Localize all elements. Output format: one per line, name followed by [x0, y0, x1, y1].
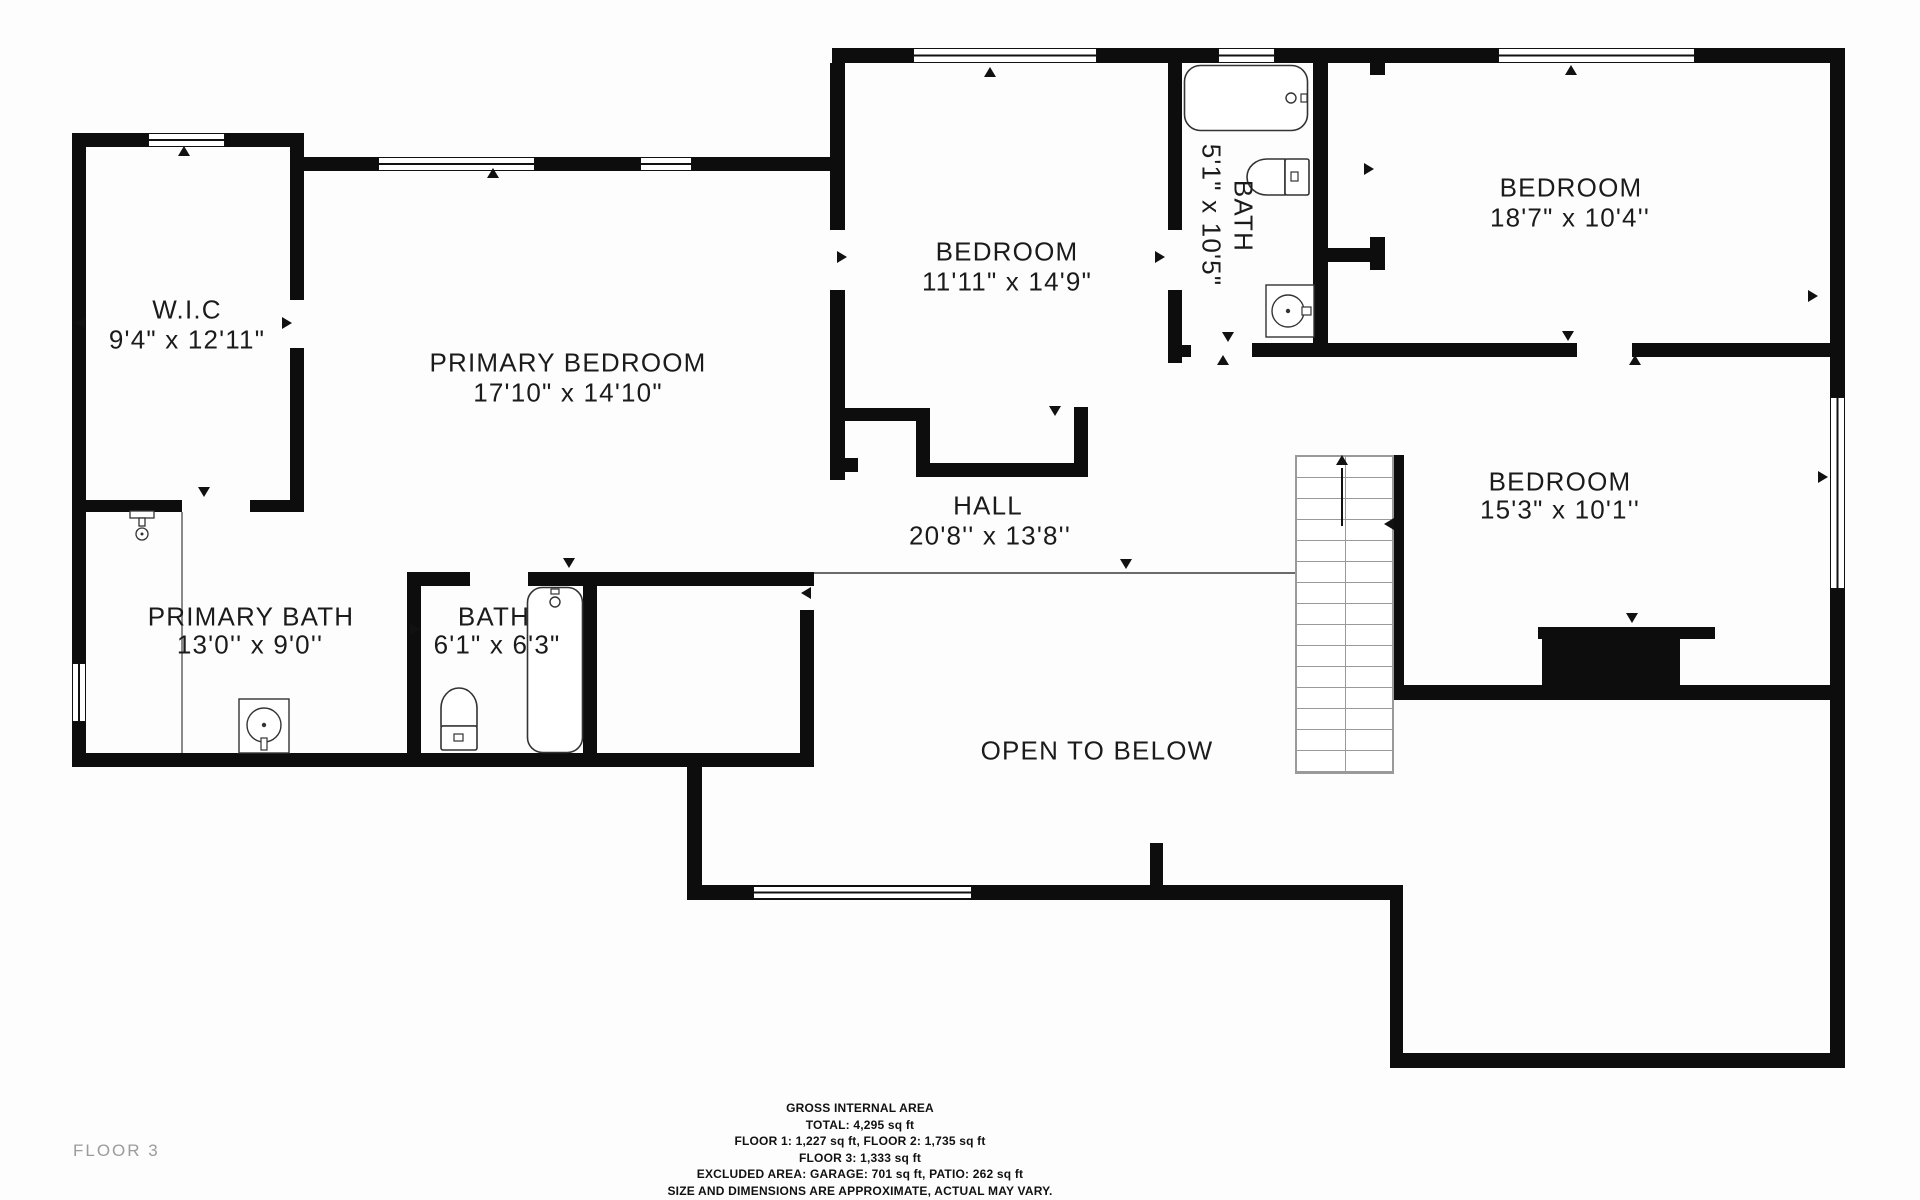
door-marker-icon [1217, 355, 1229, 365]
wall [290, 348, 304, 512]
room-label: PRIMARY BEDROOM [429, 348, 706, 379]
window-icon [72, 663, 86, 722]
door-marker-icon [1626, 613, 1638, 623]
wall [1252, 343, 1577, 357]
wall [1370, 63, 1385, 75]
wall [1632, 343, 1843, 357]
open-to-below-label: OPEN TO BELOW [981, 736, 1214, 767]
room-label: BATH [1228, 180, 1259, 252]
wall [1328, 248, 1385, 262]
room-label: BEDROOM [1489, 467, 1632, 498]
bathtub-icon [526, 586, 584, 754]
wall [830, 63, 845, 230]
window-icon [753, 886, 972, 899]
room-dims: 11'11" x 14'9" [922, 267, 1092, 298]
wall [290, 147, 304, 300]
footer-area-summary: GROSS INTERNAL AREA TOTAL: 4,295 sq ft F… [560, 1100, 1160, 1199]
room-dims: 18'7" x 10'4'' [1490, 203, 1650, 234]
door-marker-icon [984, 67, 996, 77]
footer-line: EXCLUDED AREA: GARAGE: 701 sq ft, PATIO:… [560, 1166, 1160, 1183]
sink-icon [238, 698, 290, 754]
wall [1074, 407, 1088, 477]
door-marker-icon [1808, 290, 1818, 302]
footer-line: SIZE AND DIMENSIONS ARE APPROXIMATE, ACT… [560, 1183, 1160, 1200]
door-marker-icon [1155, 251, 1165, 263]
footer-line: TOTAL: 4,295 sq ft [560, 1117, 1160, 1134]
wall [1168, 63, 1182, 230]
door-marker-icon [1629, 355, 1641, 365]
door-marker-icon [1384, 518, 1394, 530]
wall [72, 753, 814, 767]
door-marker-icon [487, 168, 499, 178]
door-marker-icon [75, 317, 85, 329]
chimney [1542, 639, 1680, 692]
door-marker-icon [1222, 332, 1234, 342]
wall [1390, 1053, 1843, 1068]
wall [830, 290, 845, 480]
door-marker-icon [282, 317, 292, 329]
room-dims: 17'10" x 14'10" [473, 378, 663, 409]
wall [687, 760, 702, 895]
window-icon [1218, 48, 1275, 63]
floor-plan: W.I.C 9'4" x 12'11" PRIMARY BEDROOM 17'1… [0, 0, 1920, 1200]
wall [583, 586, 597, 753]
wall [1390, 885, 1403, 1068]
door-marker-icon [1364, 163, 1374, 175]
room-label: HALL [953, 491, 1023, 522]
wall [290, 157, 845, 171]
stairs [1295, 455, 1394, 774]
wall [407, 572, 421, 767]
sink-icon [1265, 284, 1315, 338]
wall [845, 408, 930, 421]
stairs-up-arrow-icon [1341, 468, 1343, 526]
door-marker-icon [563, 558, 575, 568]
room-dims: 6'1" x 6'3" [434, 630, 561, 661]
door-marker-icon [801, 587, 811, 599]
wall [1150, 843, 1163, 891]
room-label: BEDROOM [1500, 173, 1643, 204]
window-icon [148, 133, 225, 147]
door-marker-icon [178, 146, 190, 156]
door-marker-icon [1120, 559, 1132, 569]
open-edge-line [814, 572, 1295, 574]
door-marker-icon [198, 487, 210, 497]
wall [1182, 345, 1191, 357]
door-marker-icon [837, 251, 847, 263]
room-dims: 13'0'' x 9'0'' [177, 630, 323, 661]
window-icon [913, 48, 1097, 63]
wall [407, 572, 470, 586]
door-marker-icon [1818, 471, 1828, 483]
room-dims: 20'8'' x 13'8'' [909, 521, 1071, 552]
shower-icon [122, 510, 162, 546]
room-dims: 9'4" x 12'11" [109, 325, 265, 356]
stairs-up-arrow-icon [1336, 455, 1348, 465]
window-icon [1498, 48, 1695, 63]
floor-label: FLOOR 3 [73, 1141, 160, 1161]
chimney [1538, 627, 1715, 639]
wall [916, 463, 1088, 477]
room-label: PRIMARY BATH [148, 602, 355, 633]
wall [1313, 63, 1328, 355]
wall [800, 610, 814, 753]
room-dims: 5'1" x 10'5" [1196, 144, 1227, 287]
footer-line: FLOOR 1: 1,227 sq ft, FLOOR 2: 1,735 sq … [560, 1133, 1160, 1150]
door-marker-icon [1049, 406, 1061, 416]
toilet-icon [435, 686, 483, 754]
room-label: W.I.C [152, 295, 222, 326]
window-icon [1830, 397, 1845, 589]
door-marker-icon [410, 623, 420, 635]
window-icon [640, 157, 692, 171]
footer-line: FLOOR 3: 1,333 sq ft [560, 1150, 1160, 1167]
room-dims: 15'3" x 10'1'' [1480, 495, 1640, 526]
window-icon [378, 157, 535, 171]
footer-line: GROSS INTERNAL AREA [560, 1100, 1160, 1117]
room-label: BEDROOM [936, 237, 1079, 268]
wall [1168, 290, 1182, 363]
wall [250, 500, 304, 512]
wall [845, 458, 858, 472]
door-marker-icon [1562, 331, 1574, 341]
door-marker-icon [1565, 65, 1577, 75]
room-label: BATH [458, 602, 530, 633]
wall [528, 572, 814, 586]
bathtub-icon [1183, 64, 1309, 132]
